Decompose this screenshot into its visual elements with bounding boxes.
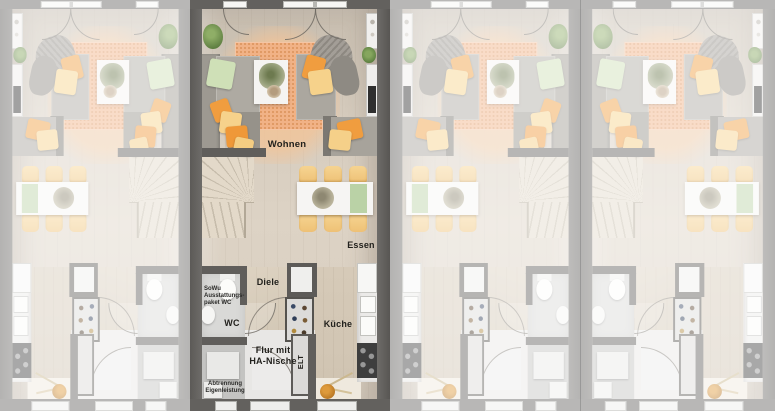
table-bowl bbox=[267, 85, 281, 98]
label-living-room: Wohnen bbox=[260, 140, 314, 150]
label-kitchen: Küche bbox=[318, 320, 358, 330]
dining-chair bbox=[299, 214, 317, 232]
plant bbox=[203, 24, 223, 49]
door-sill bbox=[317, 401, 357, 411]
table-centerpiece bbox=[312, 187, 334, 209]
niche-shelf bbox=[291, 267, 312, 292]
unit-inner: Wohnen Essen Diele WC Küche Flur mit HA-… bbox=[390, 0, 580, 411]
wc-sink bbox=[201, 306, 215, 324]
kitchen-sink-cabinet bbox=[360, 316, 376, 336]
note-wc-line3: paket WC bbox=[204, 300, 231, 306]
pillow-green bbox=[206, 58, 236, 90]
label-hallway: Diele bbox=[248, 278, 288, 288]
plant bbox=[362, 47, 376, 63]
unit-2: Wohnen Essen Diele WC Küche Flur mit HA-… bbox=[190, 0, 390, 411]
note-partition: Abtrennung Eigenleistung bbox=[200, 381, 250, 395]
unit-inner: Wohnen Essen Diele WC Küche Flur mit HA-… bbox=[580, 0, 775, 411]
entrance-door-sill bbox=[250, 401, 290, 411]
cooktop bbox=[357, 343, 377, 378]
fade-overlay bbox=[580, 0, 775, 411]
outer-wall-right bbox=[377, 0, 390, 411]
fade-overlay bbox=[0, 0, 190, 411]
dining-chair bbox=[324, 166, 342, 183]
note-partition-line2: Eigenleistung bbox=[205, 388, 244, 394]
door-sill bbox=[215, 401, 237, 411]
fade-overlay bbox=[390, 0, 580, 411]
note-partition-line1: Abtrennung bbox=[208, 381, 242, 387]
note-wc-line1: SoWu bbox=[204, 286, 221, 292]
fridge bbox=[357, 263, 377, 293]
label-corridor-line1: Flur mit bbox=[256, 345, 291, 355]
interior-wall bbox=[202, 148, 266, 157]
dining-chair bbox=[299, 166, 317, 183]
unit-3: Wohnen Essen Diele WC Küche Flur mit HA-… bbox=[390, 0, 580, 411]
unit-4: Wohnen Essen Diele WC Küche Flur mit HA-… bbox=[580, 0, 775, 411]
interior-wall bbox=[202, 337, 247, 345]
label-dining-room: Essen bbox=[343, 241, 379, 251]
label-wc: WC bbox=[220, 319, 244, 329]
label-elt: ELT bbox=[297, 350, 305, 374]
dining-chair bbox=[349, 166, 367, 183]
label-corridor-line2: HA-Nische bbox=[249, 356, 296, 366]
ha-cabinet bbox=[207, 352, 239, 379]
townhouse-row: Wohnen Essen Diele WC Küche Flur mit HA-… bbox=[0, 0, 775, 411]
staircase-winder bbox=[202, 156, 254, 203]
unit-inner: Wohnen Essen Diele WC Küche Flur mit HA-… bbox=[190, 0, 390, 411]
unit-1: Wohnen Essen Diele WC Küche Flur mit HA-… bbox=[0, 0, 190, 411]
window bbox=[223, 1, 247, 8]
decor-pompon bbox=[320, 384, 335, 399]
kitchen-cabinet bbox=[360, 296, 376, 313]
floorplan-canvas: Wohnen Essen Diele WC Küche Flur mit HA-… bbox=[0, 0, 775, 411]
dining-chair bbox=[349, 214, 367, 232]
note-wc-package: SoWu Ausstattungs- paket WC bbox=[204, 286, 248, 307]
outer-wall-left bbox=[190, 0, 202, 411]
pillow-yellow bbox=[307, 69, 333, 96]
staircase-run bbox=[202, 202, 246, 238]
tv bbox=[368, 86, 376, 113]
unit-inner: Wohnen Essen Diele WC Küche Flur mit HA-… bbox=[0, 0, 190, 411]
interior-wall bbox=[308, 334, 316, 400]
pillow-yellow bbox=[328, 129, 352, 151]
dining-bench bbox=[350, 184, 367, 213]
note-wc-line2: Ausstattungs- bbox=[204, 293, 244, 299]
terrace-door-window bbox=[283, 1, 347, 8]
dining-chair bbox=[324, 214, 342, 232]
